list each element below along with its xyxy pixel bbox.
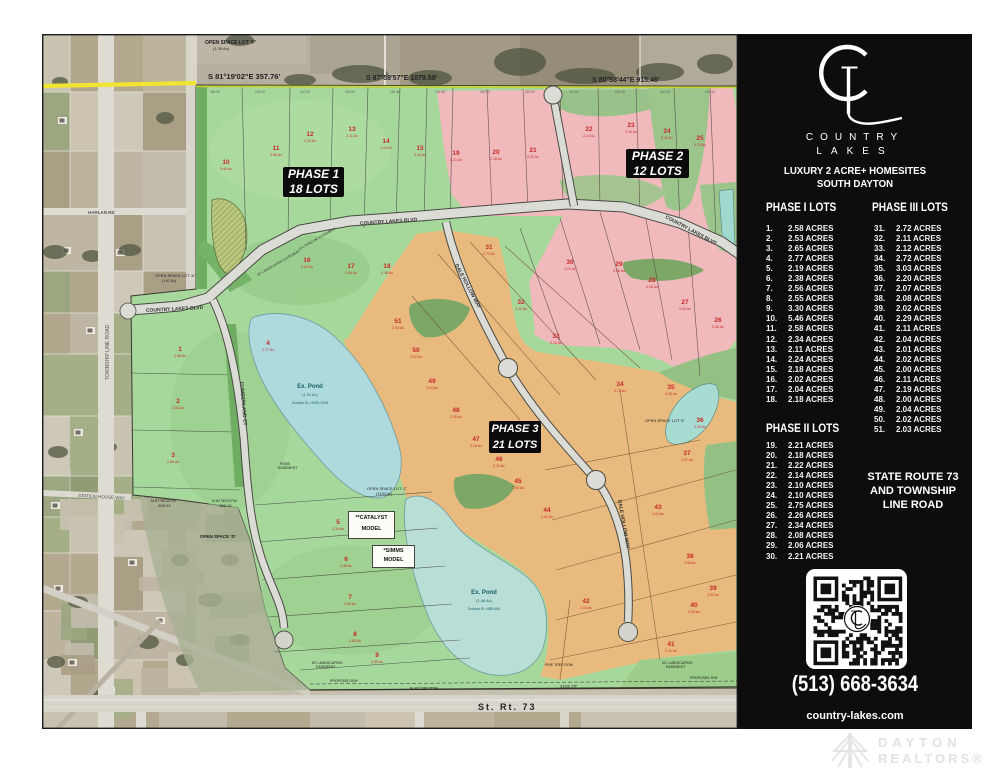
svg-text:2.21 Ac: 2.21 Ac (450, 158, 462, 162)
svg-text:OPEN SPACE 'D': OPEN SPACE 'D' (200, 534, 236, 539)
svg-text:4: 4 (266, 340, 270, 347)
svg-text:2.29 Ac: 2.29 Ac (688, 610, 700, 614)
svg-text:2.38 Ac: 2.38 Ac (340, 564, 352, 568)
svg-text:2.21 Ac: 2.21 Ac (564, 267, 576, 271)
svg-text:EASEMENT: EASEMENT (316, 665, 336, 669)
svg-text:20: 20 (492, 149, 500, 156)
svg-text:2.77 Ac: 2.77 Ac (262, 348, 274, 352)
svg-text:110.00': 110.00' (300, 90, 311, 94)
svg-text:29: 29 (615, 261, 623, 268)
svg-text:5: 5 (336, 519, 340, 526)
svg-text:2.24 Ac: 2.24 Ac (380, 146, 392, 150)
svg-text:186.74': 186.74' (219, 503, 232, 508)
svg-text:45: 45 (514, 478, 522, 485)
svg-text:32: 32 (517, 299, 525, 306)
svg-text:EASEMENT: EASEMENT (278, 466, 298, 470)
svg-text:2.34 Ac: 2.34 Ac (304, 139, 316, 143)
svg-text:2.04 Ac: 2.04 Ac (426, 386, 438, 390)
svg-text:S 81°19'02"E 357.76': S 81°19'02"E 357.76' (208, 72, 280, 81)
svg-text:41: 41 (667, 641, 675, 648)
svg-text:DAYTON: DAYTON (878, 735, 961, 750)
svg-text:18: 18 (383, 263, 391, 270)
svg-text:2.65 Ac: 2.65 Ac (167, 460, 179, 464)
svg-text:S 80°58'44"E 915.46': S 80°58'44"E 915.46' (592, 76, 660, 84)
svg-text:115.36': 115.36' (390, 90, 401, 94)
svg-text:51: 51 (394, 318, 402, 325)
svg-text:2.55 Ac: 2.55 Ac (349, 639, 361, 643)
svg-text:2.34 Ac: 2.34 Ac (679, 307, 691, 311)
svg-text:OPEN SPACE LOT 'A': OPEN SPACE LOT 'A' (155, 273, 195, 278)
svg-text:2: 2 (176, 398, 180, 405)
svg-text:(13.90 Ac): (13.90 Ac) (376, 492, 392, 496)
svg-text:13: 13 (348, 126, 356, 133)
svg-text:110.00': 110.00' (480, 90, 491, 94)
svg-text:2.14 Ac: 2.14 Ac (583, 134, 595, 138)
svg-text:24: 24 (663, 128, 671, 135)
svg-text:7: 7 (348, 594, 352, 601)
svg-text:121.92': 121.92' (255, 90, 266, 94)
svg-text:36: 36 (696, 417, 704, 424)
svg-text:2.10 Ac: 2.10 Ac (661, 136, 673, 140)
svg-text:2.00 Ac: 2.00 Ac (512, 486, 524, 490)
svg-text:2.53 Ac: 2.53 Ac (172, 406, 184, 410)
svg-text:35: 35 (667, 384, 675, 391)
svg-text:2.06 Ac: 2.06 Ac (613, 269, 625, 273)
svg-text:2.02 Ac: 2.02 Ac (301, 265, 313, 269)
svg-text:Ex. Pond: Ex. Pond (471, 590, 497, 596)
svg-text:37: 37 (683, 450, 691, 457)
svg-text:2.56 Ac: 2.56 Ac (344, 602, 356, 606)
svg-text:PROPOSED R/W: PROPOSED R/W (690, 676, 718, 680)
svg-text:8: 8 (353, 631, 357, 638)
svg-text:3: 3 (171, 452, 175, 459)
svg-text:TOWNSHIP LINE ROAD: TOWNSHIP LINE ROAD (105, 325, 111, 380)
svg-text:2.58 Ac: 2.58 Ac (174, 354, 186, 358)
svg-text:25: 25 (696, 135, 704, 142)
svg-text:2.26 Ac: 2.26 Ac (712, 325, 724, 329)
svg-text:2.18 Ac: 2.18 Ac (381, 271, 393, 275)
svg-text:5.46 Ac: 5.46 Ac (220, 167, 232, 171)
svg-text:26: 26 (714, 317, 722, 324)
svg-text:2.02 Ac: 2.02 Ac (707, 593, 719, 597)
svg-text:31: 31 (485, 244, 493, 251)
svg-text:(1.91 Ac): (1.91 Ac) (162, 279, 176, 283)
svg-text:19: 19 (452, 150, 460, 157)
svg-text:2.11 Ac: 2.11 Ac (346, 134, 358, 138)
svg-text:150.00': 150.00' (210, 90, 221, 94)
svg-text:S 87°58'57"E 1079.59': S 87°58'57"E 1079.59' (366, 74, 438, 82)
svg-text:2.04 Ac: 2.04 Ac (580, 606, 592, 610)
svg-text:10: 10 (222, 159, 230, 166)
svg-text:(1.91 Ac): (1.91 Ac) (302, 392, 319, 397)
svg-text:14: 14 (382, 138, 390, 145)
svg-text:40: 40 (690, 602, 698, 609)
svg-text:110.00': 110.00' (345, 90, 356, 94)
svg-text:2.04 Ac: 2.04 Ac (345, 271, 357, 275)
svg-text:(1.48 Ac): (1.48 Ac) (476, 598, 493, 603)
svg-text:2.00 Ac: 2.00 Ac (450, 415, 462, 419)
svg-text:St. Rt. 73: St. Rt. 73 (478, 702, 537, 712)
svg-text:50: 50 (412, 347, 420, 354)
svg-text:22: 22 (585, 126, 593, 133)
svg-text:21: 21 (529, 147, 537, 154)
svg-text:1: 1 (178, 346, 182, 353)
svg-text:16: 16 (303, 257, 311, 264)
svg-text:Surface El.=1005-1008: Surface El.=1005-1008 (292, 401, 328, 405)
svg-text:Surface El.=985-984: Surface El.=985-984 (468, 607, 500, 611)
svg-text:(1.39 Ac): (1.39 Ac) (213, 46, 230, 51)
svg-text:101.42': 101.42' (705, 90, 716, 94)
svg-text:2.10 Ac: 2.10 Ac (625, 130, 637, 134)
svg-text:OPEN SPACE LOT 'E': OPEN SPACE LOT 'E' (645, 418, 685, 423)
svg-text:2.02 Ac: 2.02 Ac (410, 355, 422, 359)
svg-text:Ex. Pond: Ex. Pond (297, 384, 323, 390)
svg-text:47: 47 (472, 436, 480, 443)
svg-text:27: 27 (681, 299, 689, 306)
svg-text:HARLAN RD: HARLAN RD (88, 210, 115, 215)
svg-text:12: 12 (306, 131, 314, 138)
svg-text:208.41': 208.41' (158, 503, 171, 508)
svg-text:2.12 Ac: 2.12 Ac (550, 341, 562, 345)
svg-text:2.18 Ac: 2.18 Ac (414, 153, 426, 157)
svg-text:46: 46 (495, 456, 503, 463)
svg-text:38: 38 (686, 553, 694, 560)
svg-text:3.30 Ac: 3.30 Ac (371, 660, 383, 664)
svg-text:2.01 Ac: 2.01 Ac (652, 512, 664, 516)
svg-text:REALTORS®: REALTORS® (878, 751, 985, 766)
svg-text:28: 28 (648, 277, 656, 284)
svg-text:2.19 Ac: 2.19 Ac (332, 527, 344, 531)
svg-text:2.02 Ac: 2.02 Ac (541, 515, 553, 519)
svg-text:3.03 Ac: 3.03 Ac (665, 392, 677, 396)
svg-text:2.20 Ac: 2.20 Ac (694, 425, 706, 429)
svg-text:49: 49 (428, 378, 436, 385)
svg-text:OPEN SPACE LOT 'C': OPEN SPACE LOT 'C' (367, 486, 407, 491)
svg-text:PINE TREE ROW: PINE TREE ROW (545, 663, 574, 667)
svg-text:48: 48 (452, 407, 460, 414)
svg-text:2.75 Ac: 2.75 Ac (694, 143, 706, 147)
svg-text:2.03 Ac: 2.03 Ac (392, 326, 404, 330)
svg-text:23: 23 (627, 122, 635, 129)
svg-text:2.11 Ac: 2.11 Ac (515, 307, 527, 311)
svg-text:15: 15 (416, 145, 424, 152)
svg-text:44: 44 (543, 507, 551, 514)
svg-text:110.00': 110.00' (525, 90, 536, 94)
svg-text:2.19 Ac: 2.19 Ac (470, 444, 482, 448)
svg-text:2.72 Ac: 2.72 Ac (614, 389, 626, 393)
svg-text:2.72 Ac: 2.72 Ac (483, 252, 495, 256)
svg-text:2.08 Ac: 2.08 Ac (646, 285, 658, 289)
svg-text:2.11 Ac: 2.11 Ac (493, 464, 505, 468)
svg-text:2.07 Ac: 2.07 Ac (681, 458, 693, 462)
svg-text:2.22 Ac: 2.22 Ac (527, 155, 539, 159)
svg-text:34: 34 (616, 381, 624, 388)
svg-text:PROPOSED R/W: PROPOSED R/W (330, 679, 358, 683)
svg-text:N 81°29'27"W: N 81°29'27"W (410, 686, 439, 691)
svg-text:42: 42 (582, 598, 590, 605)
svg-text:43: 43 (654, 504, 662, 511)
svg-text:EASEMENT: EASEMENT (666, 665, 686, 669)
svg-text:2.08 Ac: 2.08 Ac (684, 561, 696, 565)
svg-text:39: 39 (709, 585, 717, 592)
svg-text:110.00': 110.00' (615, 90, 626, 94)
svg-text:2.18 Ac: 2.18 Ac (490, 157, 502, 161)
svg-text:30: 30 (566, 259, 574, 266)
svg-text:2152.72': 2152.72' (560, 684, 577, 689)
svg-text:6: 6 (344, 556, 348, 563)
svg-text:97.24': 97.24' (570, 90, 579, 94)
svg-text:110.00': 110.00' (660, 90, 671, 94)
svg-text:17: 17 (347, 263, 355, 270)
svg-text:2.58 Ac: 2.58 Ac (270, 153, 282, 157)
svg-text:101.52': 101.52' (435, 90, 446, 94)
svg-text:2.11 Ac: 2.11 Ac (665, 649, 677, 653)
svg-text:9: 9 (375, 652, 379, 659)
svg-text:11: 11 (273, 145, 280, 152)
svg-text:33: 33 (552, 333, 560, 340)
